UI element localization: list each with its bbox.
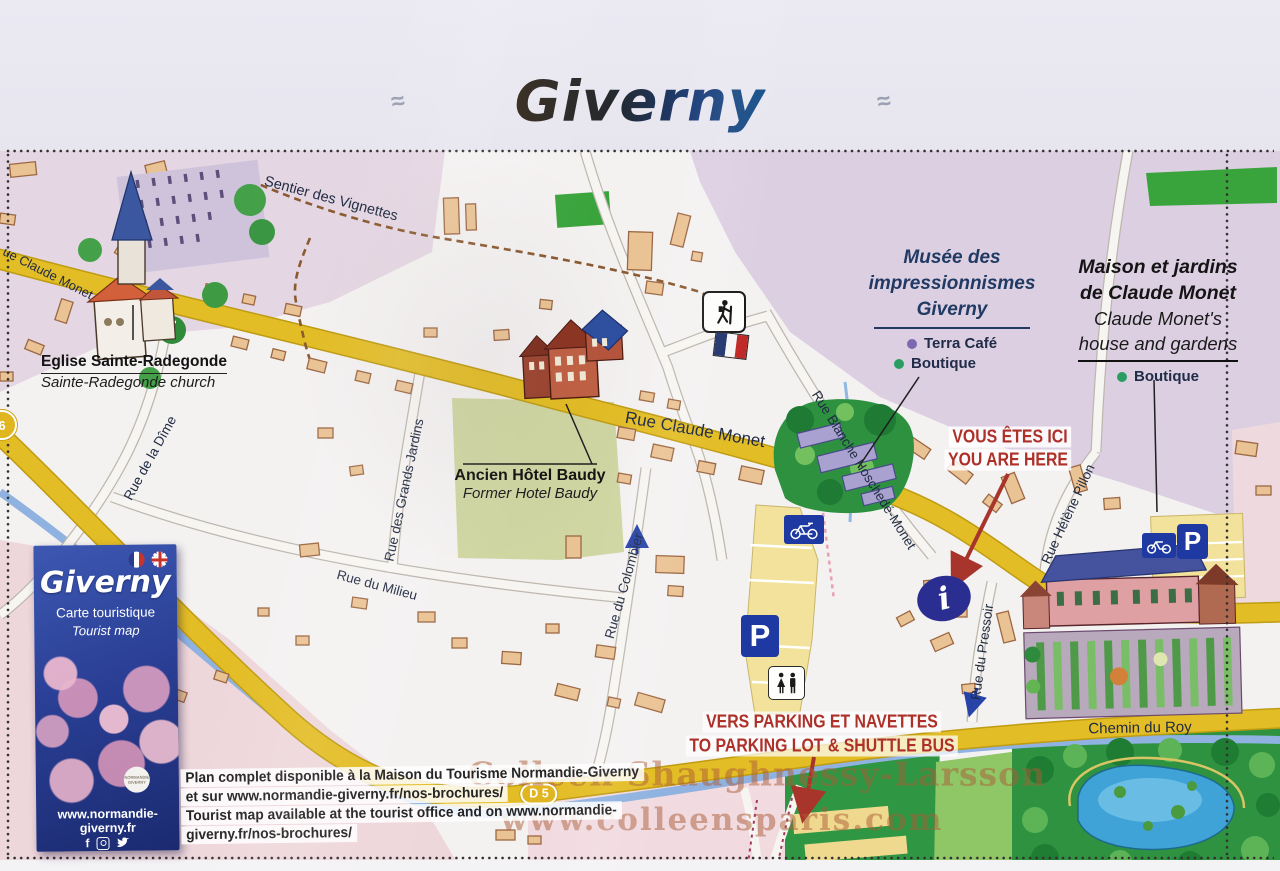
label-baudy-en: Former Hotel Baudy xyxy=(454,485,605,502)
brochure-website: www.normandie-giverny.fr xyxy=(36,806,179,835)
you-are-here-fr: VOUS ÊTES ICI xyxy=(949,427,1071,448)
hiking-trail-icon xyxy=(702,291,746,333)
street-label-chemin-du-roy: Chemin du Roy xyxy=(1088,719,1192,738)
footer-note: Plan complet disponible à la Maison du T… xyxy=(180,763,669,846)
wc-toilets-icon xyxy=(768,666,805,700)
brochure-subtitle-en: Tourist map xyxy=(34,622,177,638)
dotted-border-bottom xyxy=(6,856,1274,860)
maison-title-en1: Claude Monet's xyxy=(1043,306,1273,331)
parking-icon-east: P xyxy=(1177,524,1208,559)
french-flag-icon xyxy=(713,331,750,360)
label-eglise-fr: Eglise Sainte-Radegonde xyxy=(41,353,227,374)
tourist-brochure-panel: Giverny Carte touristique Tourist map NO… xyxy=(33,544,179,851)
label-eglise-en: Sainte-Radegonde church xyxy=(41,374,227,391)
instagram-icon xyxy=(96,836,109,849)
bike-parking-icon-east xyxy=(1142,533,1176,558)
parking-annotation-fr: VERS PARKING ET NAVETTES xyxy=(703,712,942,733)
musee-title-line3: Giverny xyxy=(832,297,1072,323)
parking-icon-center: P xyxy=(741,615,779,657)
parking-annotation-en: TO PARKING LOT & SHUTTLE BUS xyxy=(686,736,958,757)
page-title: Giverny xyxy=(515,70,766,135)
maison-title-en2: house and gardens xyxy=(1043,331,1273,356)
brochure-title: Giverny xyxy=(34,564,177,600)
facebook-icon: f xyxy=(85,836,89,850)
brochure-blossom-photo xyxy=(34,639,179,805)
bike-parking-icon-center xyxy=(784,515,824,544)
legend-musee-boutique: Boutique xyxy=(911,355,976,372)
brochure-subtitle-fr: Carte touristique xyxy=(34,604,177,620)
musee-title-line1: Musée des xyxy=(832,245,1072,271)
musee-boutique-dot xyxy=(894,359,904,369)
footer-line-4: giverny.fr/nos-brochures/ xyxy=(181,824,357,844)
musee-info-block: Musée des impressionnismes Giverny Terra… xyxy=(832,245,1072,372)
twitter-icon xyxy=(116,837,130,849)
maison-title-fr1: Maison et jardins xyxy=(1043,254,1273,280)
brochure-logo: NORMANDIE GIVERNY xyxy=(124,767,150,793)
maison-title-fr2: de Claude Monet xyxy=(1043,280,1273,306)
musee-title-line2: impressionnismes xyxy=(832,271,1072,297)
maison-boutique-dot xyxy=(1117,372,1127,382)
legend-terra-cafe: Terra Café xyxy=(924,335,997,352)
maison-info-block: Maison et jardins de Claude Monet Claude… xyxy=(1043,254,1273,385)
legend-maison-boutique: Boutique xyxy=(1134,368,1199,385)
you-are-here-en: YOU ARE HERE xyxy=(944,450,1071,471)
giverny-map-photo: Giverny ≈ ≈ ue Claude Monet Sentier des … xyxy=(0,0,1280,871)
label-baudy-fr: Ancien Hôtel Baudy xyxy=(454,467,605,485)
brochure-social-icons: f xyxy=(36,835,179,850)
dotted-border-top xyxy=(6,149,1274,153)
terra-cafe-dot xyxy=(907,339,917,349)
